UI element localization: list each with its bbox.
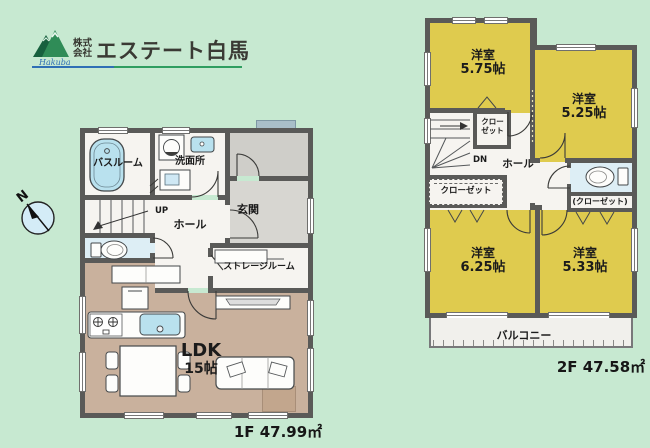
window bbox=[79, 296, 86, 334]
f1-ldk-size-label: 15帖 bbox=[176, 361, 226, 378]
wall bbox=[230, 176, 237, 181]
wall bbox=[150, 253, 155, 258]
window bbox=[124, 412, 164, 419]
logo-underline-blue bbox=[32, 66, 114, 68]
f1-ldk-label: LDK bbox=[176, 340, 226, 362]
logo-underline-green bbox=[114, 66, 242, 68]
wall bbox=[567, 162, 571, 168]
wall bbox=[530, 23, 535, 158]
window bbox=[98, 127, 128, 134]
room-size: 5.25帖 bbox=[536, 106, 632, 122]
f2-closet-w-label: クローゼット bbox=[428, 186, 504, 196]
compass-north-label: N bbox=[14, 187, 32, 206]
f2-area-caption: 2F 47.58㎡ bbox=[556, 356, 646, 377]
f1-kitchen-floor bbox=[85, 263, 155, 413]
window bbox=[424, 52, 431, 86]
window bbox=[452, 17, 476, 24]
wall bbox=[425, 18, 537, 23]
wall bbox=[155, 288, 188, 293]
room-name: 洋室 bbox=[537, 246, 633, 260]
window bbox=[196, 412, 232, 419]
f2-toilet-floor bbox=[570, 162, 632, 192]
f1-toilet-floor bbox=[85, 238, 155, 258]
f2-closet-stairs-label: クローゼット bbox=[479, 117, 506, 136]
wall bbox=[565, 158, 637, 163]
compass: N bbox=[14, 186, 66, 242]
f1-washroom-label: 洗面所 bbox=[158, 156, 222, 168]
f1-stairs-up-label: UP bbox=[155, 206, 179, 216]
window bbox=[484, 17, 508, 24]
window bbox=[307, 300, 314, 336]
window bbox=[424, 228, 431, 272]
room-size: 6.25帖 bbox=[433, 260, 533, 276]
f2-room-sw-label: 洋室 6.25帖 bbox=[433, 246, 533, 276]
wall bbox=[218, 195, 230, 200]
f2-room-ne-label: 洋室 5.25帖 bbox=[536, 92, 632, 122]
f2-room-se-label: 洋室 5.33帖 bbox=[537, 246, 633, 276]
wall bbox=[150, 238, 155, 243]
f2-room-nw-label: 洋室 5.75帖 bbox=[433, 48, 533, 78]
wall bbox=[259, 176, 308, 181]
logo-script-text: Hakuba bbox=[38, 58, 71, 67]
f2-closet-e-label: (クローゼット) bbox=[568, 197, 632, 207]
f1-area-caption: 1F 47.99㎡ bbox=[226, 421, 330, 442]
window bbox=[424, 118, 431, 144]
wall bbox=[85, 195, 192, 200]
wall bbox=[216, 288, 230, 293]
f1-storage-label: ストレージルーム bbox=[212, 262, 306, 273]
room-size: 5.75帖 bbox=[433, 62, 533, 78]
window bbox=[307, 348, 314, 392]
room-name: 洋室 bbox=[536, 92, 632, 106]
f1-hall-label: ホール bbox=[162, 218, 218, 231]
closet-hanger-pole bbox=[434, 183, 498, 184]
wall bbox=[632, 45, 637, 318]
window bbox=[79, 352, 86, 392]
wall bbox=[208, 248, 213, 257]
f2-stairs-dn-label: DN bbox=[473, 155, 495, 165]
room-size: 5.33帖 bbox=[537, 260, 633, 276]
window bbox=[631, 88, 638, 128]
f1-entrance-label: 玄関 bbox=[228, 203, 268, 216]
f2-hall-label: ホール bbox=[495, 158, 541, 171]
wall bbox=[85, 258, 155, 263]
window bbox=[162, 127, 190, 134]
wall bbox=[567, 208, 637, 212]
window bbox=[307, 198, 314, 234]
logo-company-name: エステート白馬 bbox=[96, 35, 250, 65]
f1-stairs-floor bbox=[85, 200, 155, 233]
room-name: 洋室 bbox=[433, 246, 533, 260]
wall bbox=[567, 184, 571, 192]
f1-entrance-porch-floor bbox=[230, 133, 308, 176]
logo-mountain-icon bbox=[33, 30, 69, 57]
window bbox=[556, 44, 596, 51]
floorplan-sheet: Hakuba 株式会社 エステート白馬 N bbox=[0, 0, 650, 448]
wall bbox=[210, 243, 308, 248]
room-name: 洋室 bbox=[433, 48, 533, 62]
wall bbox=[85, 233, 155, 238]
f1-bathroom-label: バスルーム bbox=[84, 158, 152, 170]
f2-balcony-label: バルコニー bbox=[474, 329, 574, 342]
logo-company-prefix: 株式会社 bbox=[73, 39, 94, 59]
f1-rug bbox=[262, 386, 296, 412]
window bbox=[248, 412, 288, 419]
